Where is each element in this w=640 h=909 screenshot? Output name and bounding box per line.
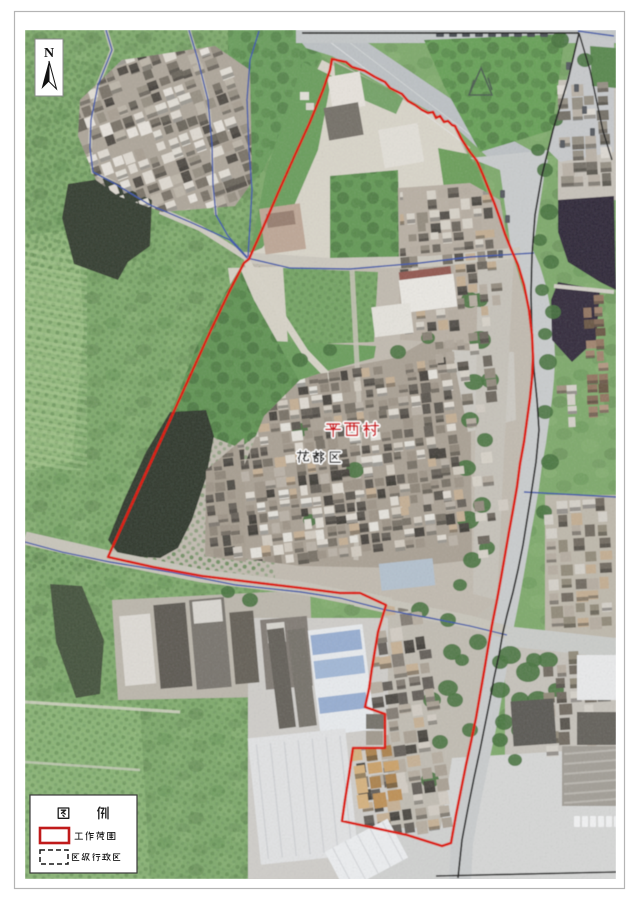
svg-text:N: N	[44, 46, 54, 61]
